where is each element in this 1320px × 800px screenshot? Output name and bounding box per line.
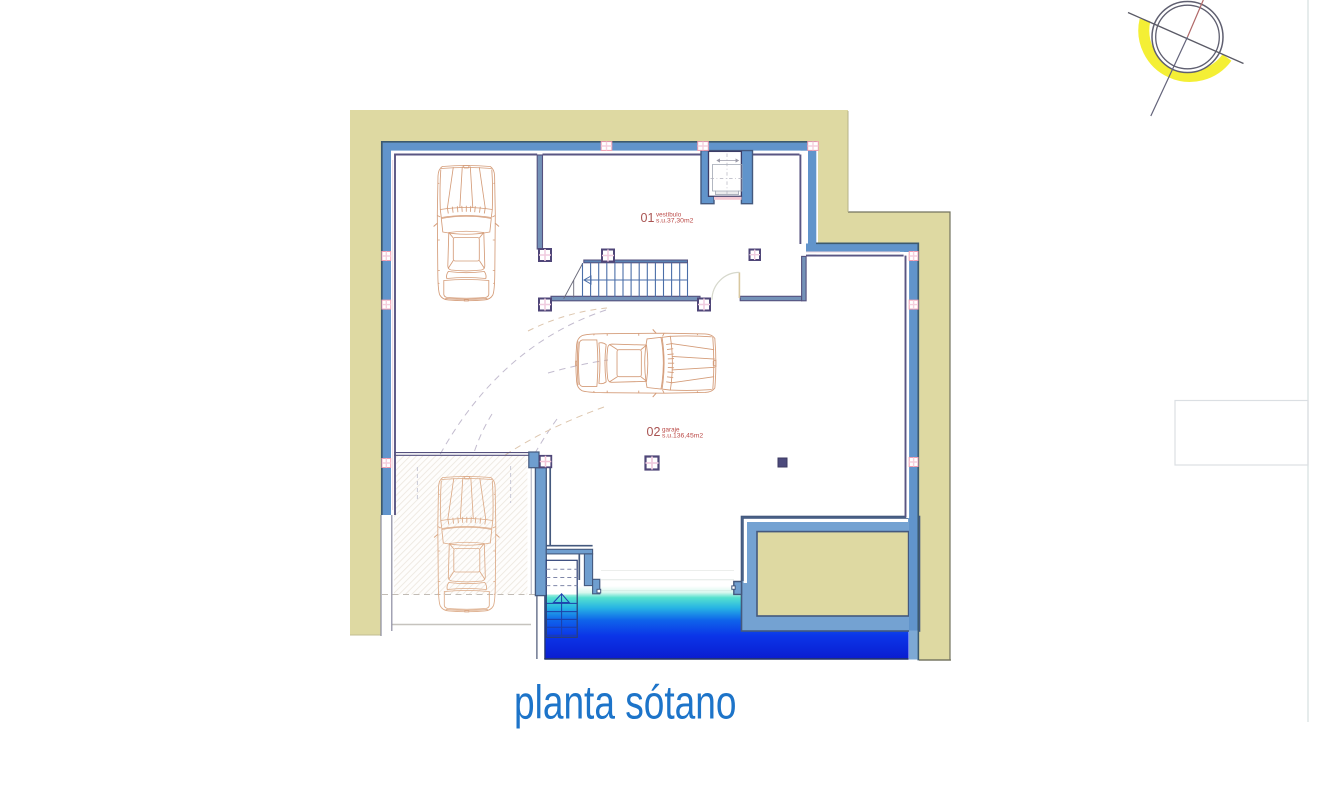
svg-text:01: 01	[641, 211, 655, 225]
svg-text:s.u.37,30m2: s.u.37,30m2	[656, 218, 694, 225]
svg-text:planta sótano: planta sótano	[514, 676, 737, 729]
svg-text:s.u.136,45m2: s.u.136,45m2	[662, 433, 703, 440]
svg-text:02: 02	[647, 425, 661, 439]
